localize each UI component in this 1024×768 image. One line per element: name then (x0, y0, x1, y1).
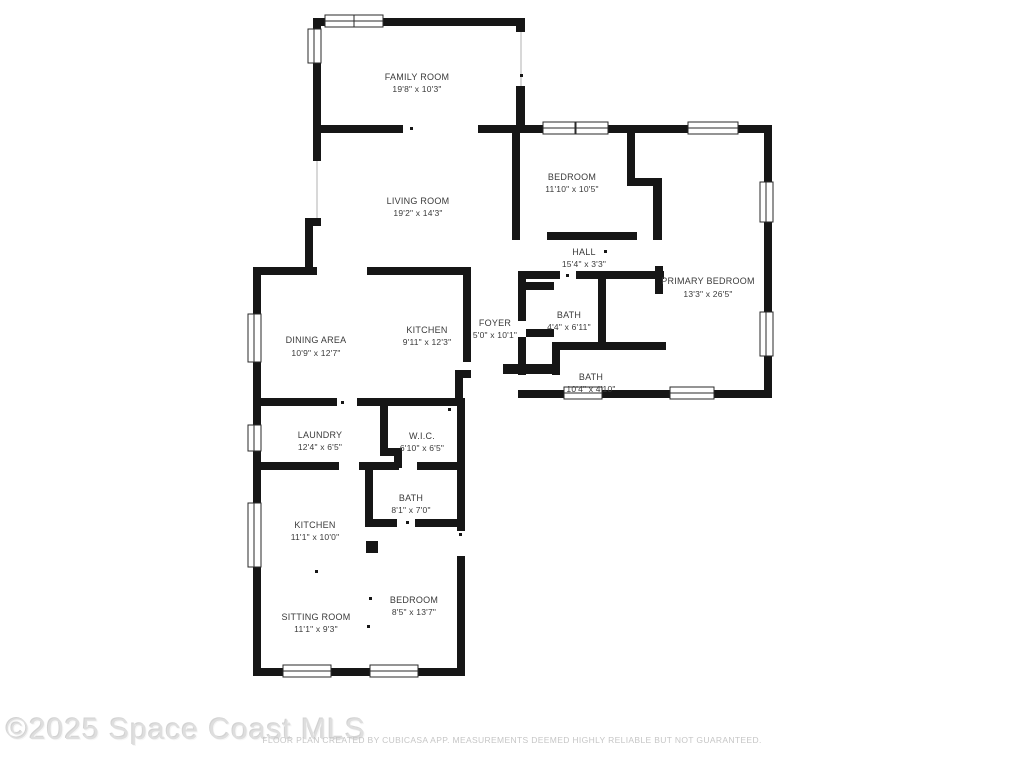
floor-plan-drawing: FAMILY ROOM 19'8" x 10'3" LIVING ROOM 19… (0, 0, 1024, 768)
wall (315, 125, 403, 133)
wall-post (366, 541, 378, 553)
wall (526, 282, 554, 290)
door-markers-layer (315, 74, 607, 628)
wall (547, 232, 637, 240)
wall (253, 267, 317, 275)
wall (365, 519, 397, 527)
wall (518, 390, 772, 398)
room-dims-primary-bedroom: 13'3" x 26'5" (683, 289, 732, 299)
room-label-kitchen-upper: KITCHEN (406, 325, 447, 335)
room-label-hall: HALL (572, 247, 596, 257)
room-label-wic: W.I.C. (409, 431, 435, 441)
room-label-family-room: FAMILY ROOM (385, 72, 449, 82)
room-label-laundry: LAUNDRY (298, 430, 343, 440)
door-marker (341, 401, 344, 404)
door-marker (367, 625, 370, 628)
wall (357, 398, 457, 406)
wall (415, 519, 457, 527)
wall (255, 398, 337, 406)
wall (518, 271, 526, 321)
wall (552, 342, 666, 350)
wall (627, 132, 635, 182)
door-marker (315, 570, 318, 573)
wall (516, 18, 525, 32)
room-dims-wic: 6'10" x 6'5" (400, 443, 444, 453)
windows-layer (248, 15, 773, 677)
wall (359, 462, 399, 470)
room-dims-kitchen-lower: 11'1" x 10'0" (291, 532, 340, 542)
room-label-foyer: FOYER (479, 318, 512, 328)
door-marker (406, 521, 409, 524)
door-marker (369, 597, 372, 600)
room-label-bath-primary: BATH (579, 372, 603, 382)
room-dims-bath-primary: 10'4" x 4'10" (566, 384, 615, 394)
wall (463, 267, 471, 362)
door-marker (566, 274, 569, 277)
floor-plan-page: FAMILY ROOM 19'8" x 10'3" LIVING ROOM 19… (0, 0, 1024, 768)
wall (365, 470, 373, 527)
room-dims-sitting-room: 11'1" x 9'3" (294, 624, 338, 634)
room-dims-bath-lower: 8'1" x 7'0" (391, 505, 430, 515)
room-label-bath-lower: BATH (399, 493, 423, 503)
wall (512, 132, 520, 240)
room-label-bedroom-top: BEDROOM (548, 172, 596, 182)
room-dims-bedroom-bottom: 8'5" x 13'7" (392, 607, 436, 617)
wall (764, 125, 772, 398)
room-dims-bedroom-top: 11'10" x 10'5" (545, 184, 599, 194)
room-dims-hall: 15'4" x 3'3" (562, 259, 606, 269)
room-label-dining-area: DINING AREA (286, 335, 347, 345)
disclaimer-text: FLOOR PLAN CREATED BY CUBICASA APP. MEAS… (0, 735, 1024, 745)
wall (598, 271, 606, 349)
room-label-living-room: LIVING ROOM (387, 196, 450, 206)
wall (457, 398, 465, 531)
room-label-primary-bedroom: PRIMARY BEDROOM (661, 276, 754, 286)
wall (417, 462, 457, 470)
door-marker (520, 74, 523, 77)
room-dims-living-room: 19'2" x 14'3" (393, 208, 442, 218)
wall (367, 267, 471, 275)
door-marker (352, 128, 355, 131)
wall (576, 271, 664, 279)
room-label-sitting-room: SITTING ROOM (282, 612, 351, 622)
wall (653, 178, 662, 240)
wall (380, 398, 388, 454)
room-label-kitchen-lower: KITCHEN (294, 520, 335, 530)
wall (457, 556, 465, 676)
walls-layer (253, 18, 772, 676)
room-dims-family-room: 19'8" x 10'3" (392, 84, 441, 94)
wall (255, 462, 339, 470)
room-dims-bath-hall: 4'4" x 6'11" (547, 322, 591, 332)
wall (503, 364, 555, 374)
room-dims-foyer: 5'0" x 10'1" (473, 330, 517, 340)
room-dims-kitchen-upper: 9'11" x 12'3" (403, 337, 452, 347)
room-dims-dining-area: 10'9" x 12'7" (291, 348, 340, 358)
room-label-bedroom-bottom: BEDROOM (390, 595, 438, 605)
door-marker (410, 127, 413, 130)
door-marker (459, 533, 462, 536)
door-marker (604, 250, 607, 253)
wall (512, 232, 520, 240)
room-label-bath-hall: BATH (557, 310, 581, 320)
door-marker (448, 408, 451, 411)
room-dims-laundry: 12'4" x 6'5" (298, 442, 342, 452)
